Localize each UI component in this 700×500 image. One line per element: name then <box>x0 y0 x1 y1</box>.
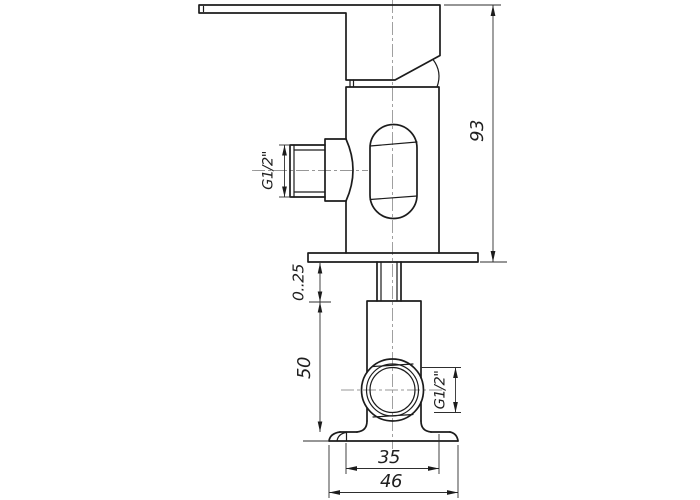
dim-lower-height: 50 <box>294 302 322 432</box>
cartridge-line-lower <box>370 196 417 200</box>
arrowhead-up <box>318 302 323 313</box>
arrowhead-up <box>282 145 287 156</box>
collar-outline <box>325 139 346 201</box>
dim-label-46: 46 <box>380 471 402 492</box>
escutcheon-plate <box>308 253 478 262</box>
thread-outline <box>290 145 325 197</box>
handle-lever <box>199 5 440 87</box>
dim-label-side-thread: G1/2" <box>261 151 277 190</box>
body-flange-fillets <box>357 421 431 432</box>
arrowhead-down <box>453 402 458 413</box>
mixer-valve-drawing: 93 G1/2" 0..25 50 G1/2" <box>0 0 700 500</box>
arrowhead-up <box>453 368 458 379</box>
side-thread-fitting <box>290 139 346 201</box>
dim-side-thread: G1/2" <box>261 145 292 197</box>
handle-joint-tick <box>350 80 354 87</box>
arrowhead-left <box>346 466 357 471</box>
arrowhead-right <box>447 490 458 495</box>
arrowhead-left <box>329 490 340 495</box>
flange-right-end-arc <box>450 432 458 441</box>
arrowhead-down <box>318 292 323 303</box>
dim-label-bottom-thread: G1/2" <box>433 371 449 410</box>
lower-body-outline <box>367 301 421 421</box>
lever-outline <box>199 5 440 80</box>
drawing-canvas: 93 G1/2" 0..25 50 G1/2" <box>0 0 700 500</box>
base-flange <box>303 432 458 441</box>
cartridge-window <box>370 124 417 218</box>
dim-label-depth: 0..25 <box>290 264 308 301</box>
arrowhead-down <box>491 251 496 262</box>
dim-label-50: 50 <box>294 357 315 379</box>
center-lines <box>252 0 445 449</box>
arrowhead-up <box>491 5 496 16</box>
dim-label-93: 93 <box>467 120 488 142</box>
flange-left-detail-arc <box>337 433 346 442</box>
arrowhead-down <box>318 422 323 433</box>
arrowhead-up <box>318 263 323 274</box>
lever-base-arc <box>433 60 439 88</box>
arrowhead-down <box>282 187 287 198</box>
thread-minor-lines <box>294 150 325 192</box>
dim-overall-height: 93 <box>444 5 507 262</box>
dim-wall-depth: 0..25 <box>290 263 332 302</box>
plate-outline <box>308 253 478 262</box>
dim-label-35: 35 <box>378 447 400 468</box>
arrowhead-right <box>428 466 439 471</box>
dim-bottom-thread: G1/2" <box>421 368 461 413</box>
boss-bulge-arc <box>346 139 353 201</box>
stem-inner-lines <box>381 262 397 301</box>
connection-stem <box>377 262 401 301</box>
cartridge-line-upper <box>370 142 417 146</box>
